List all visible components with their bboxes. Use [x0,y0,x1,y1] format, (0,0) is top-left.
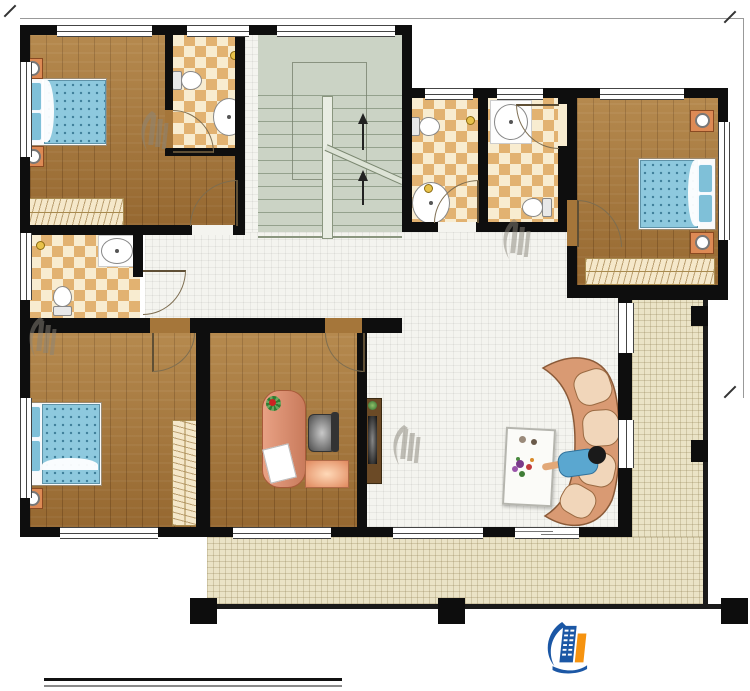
drain-icon [227,115,231,119]
title-underline [44,678,342,681]
column [691,440,708,462]
dimension-line-top [20,18,743,19]
dimension-tick [4,5,17,18]
wall [632,288,728,300]
wall [133,235,143,277]
toilet [52,286,74,316]
flower-icon [269,399,276,406]
window [277,25,395,37]
drain-icon [429,201,433,205]
side-table [305,460,349,488]
window [497,88,543,100]
drain-icon [509,120,513,124]
wardrobe [585,258,715,285]
door-opening [150,318,190,333]
door-opening [567,200,577,246]
window [425,88,473,100]
dimension-line-right [743,18,744,398]
sink [101,238,133,264]
door-opening [438,222,476,232]
bed-sheet [42,458,98,470]
dimension-tick [724,11,737,24]
toilet [522,196,552,218]
column [721,598,748,624]
title-underline-2 [44,685,342,687]
toilet-bowl [522,198,543,217]
watermark [390,422,436,462]
watermark [26,314,72,354]
window [20,233,32,300]
column [190,598,217,624]
plant-icon [368,401,377,410]
toilet-bowl [181,71,202,90]
pillow [698,164,713,193]
window [618,303,634,353]
wall [567,88,577,285]
drain-icon [115,249,119,253]
floor-drain-icon [424,184,433,193]
corridor-strip [245,35,258,237]
bed-mattress [42,404,100,484]
watermark-logo-icon [500,217,534,261]
wall [196,318,210,537]
door-opening [325,318,362,333]
watermark [138,108,184,148]
window [60,527,158,539]
dimension-tick [724,386,737,399]
window [233,527,331,539]
floor-plan-page [0,0,750,691]
column [438,598,465,624]
watermark-logo-icon [26,315,60,359]
toilet [172,70,202,92]
watermark-logo-icon [390,423,424,467]
toilet-bowl [53,286,72,307]
window [393,527,483,539]
window [718,122,730,240]
bouquet-icon [516,460,524,468]
watermark [500,216,546,256]
cup-icon [519,436,526,443]
toilet [410,116,440,138]
shower-icon [36,241,45,250]
cup-icon [531,439,537,445]
toilet-tank [542,198,552,217]
toilet-bowl [419,117,440,136]
window [600,88,684,100]
nightstand [690,232,714,254]
chair-back [331,412,339,452]
stair-arrow-up-icon [358,170,368,181]
balcony-floor-bottom [207,537,703,604]
wardrobe [172,420,198,526]
watermark-logo-icon [138,109,172,153]
column [691,306,708,326]
balcony-edge-bottom [192,604,748,609]
company-logo-icon [541,618,589,674]
nightstand [690,110,714,132]
door-opening [558,104,567,146]
balcony-floor-right [632,300,703,537]
wardrobe [22,198,124,226]
window [57,25,152,37]
stair-arrow-up-icon [358,113,368,124]
window [20,62,32,157]
sliding-door [515,527,579,539]
pillow [698,194,713,223]
window [20,398,32,498]
door-opening [192,225,233,235]
window [618,420,634,468]
stair-arrow-line [362,124,364,150]
lamp-icon [695,235,710,250]
tv [368,416,377,464]
floor-drain-icon [466,116,475,125]
stair-stringer [322,96,333,239]
lamp-icon [695,113,710,128]
window [187,25,249,37]
wall [402,222,577,232]
wall [402,25,412,232]
person-head [588,446,606,464]
wall [478,98,488,232]
stair-arrow-line [362,181,364,205]
